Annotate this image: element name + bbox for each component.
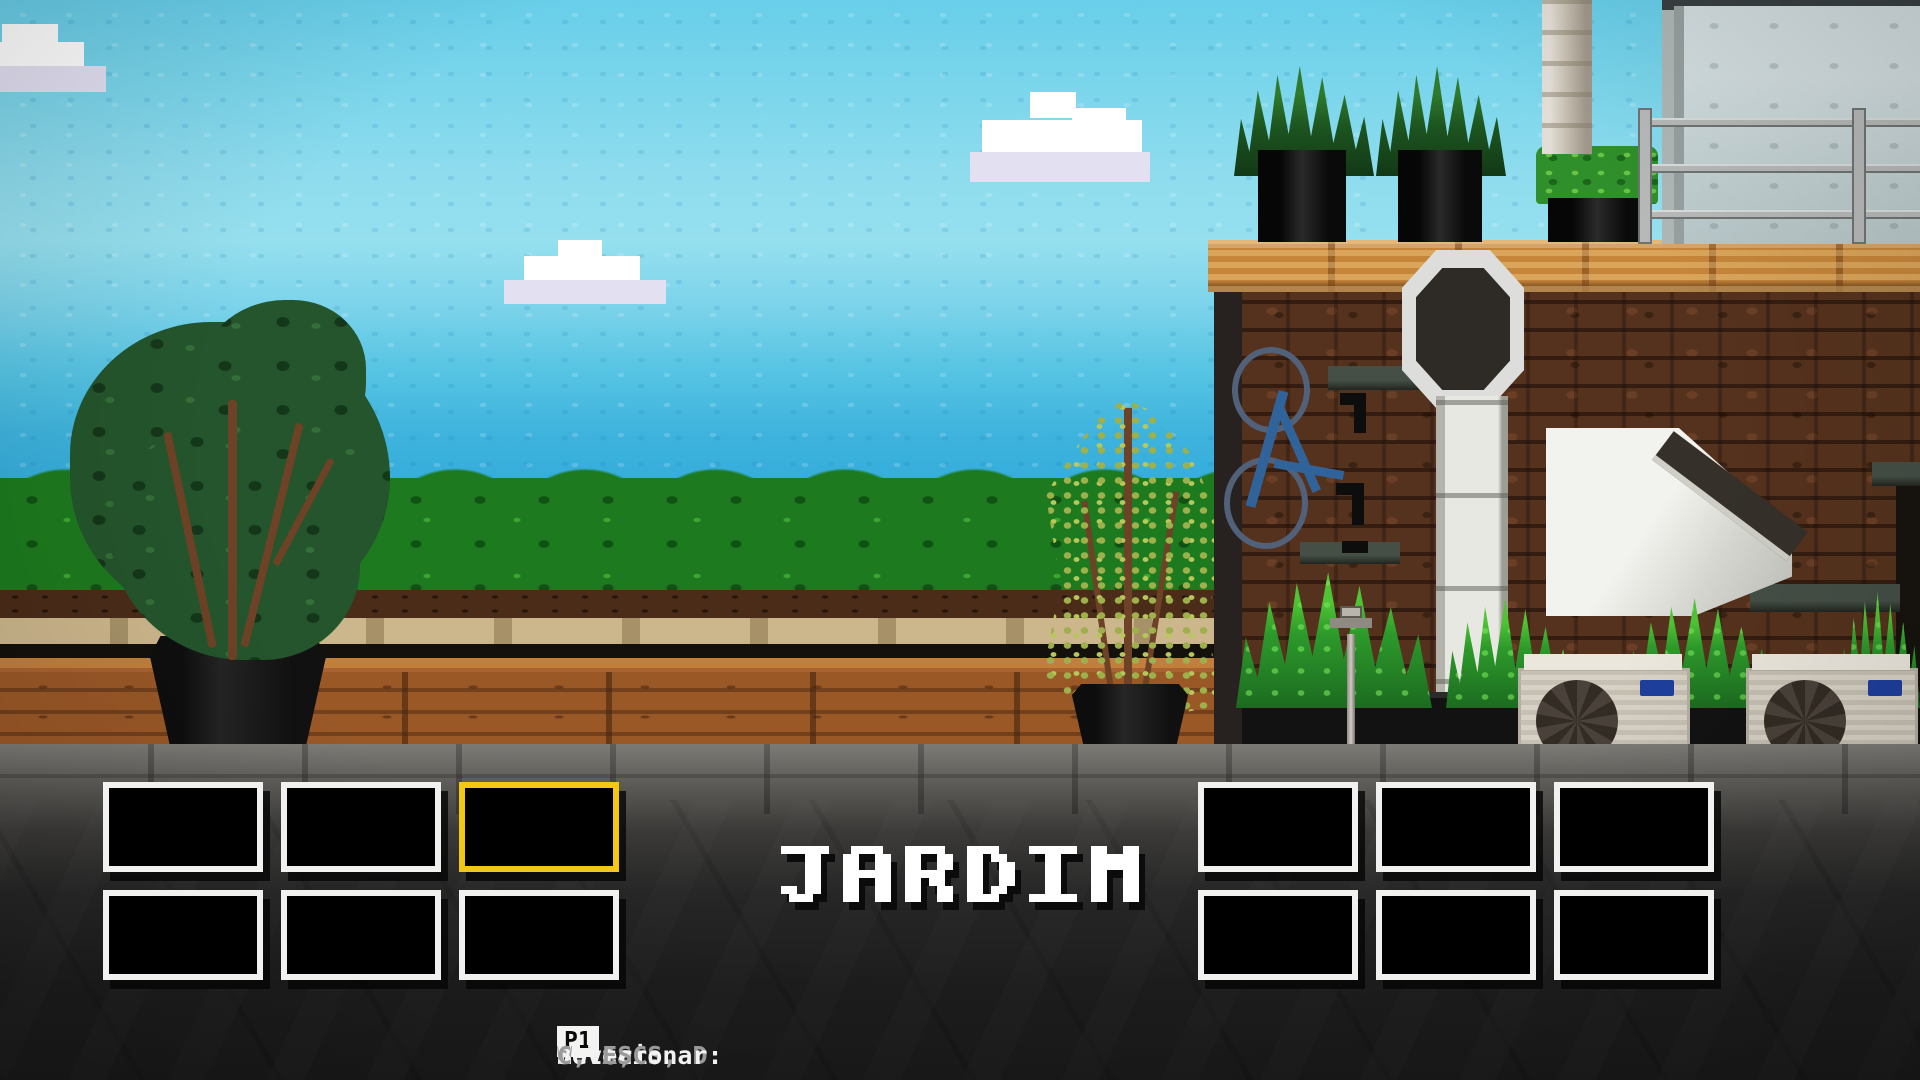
title-pixel <box>1099 886 1107 894</box>
title-pixel <box>905 846 913 854</box>
title-pixel <box>1007 862 1015 870</box>
title-pixel <box>945 894 953 902</box>
title-pixel <box>991 846 999 854</box>
title-pixel <box>1029 894 1037 902</box>
title-pixel <box>975 862 983 870</box>
title-pixel <box>851 870 859 878</box>
title-pixel <box>1123 894 1131 902</box>
title-pixel <box>875 886 883 894</box>
title-pixel <box>1091 886 1099 894</box>
title-pixel <box>1007 870 1015 878</box>
title-pixel <box>905 870 913 878</box>
title-pixel <box>1099 854 1107 862</box>
title-pixel <box>999 870 1007 878</box>
title-pixel <box>1107 854 1115 862</box>
title-pixel <box>851 854 859 862</box>
title-pixel <box>813 862 821 870</box>
title-pixel <box>1131 886 1139 894</box>
title-pixel <box>905 862 913 870</box>
title-pixel <box>921 870 929 878</box>
title-pixel <box>937 886 945 894</box>
title-pixel <box>975 854 983 862</box>
title-pixel <box>937 846 945 854</box>
octagon-window-glass <box>1416 268 1510 390</box>
concrete-pillar <box>1542 0 1592 154</box>
title-pixel <box>851 878 859 886</box>
title-pixel <box>1045 846 1053 854</box>
cloud-small <box>500 240 670 314</box>
title-pixel <box>1131 854 1139 862</box>
title-pixel <box>967 894 975 902</box>
title-pixel <box>843 878 851 886</box>
title-pixel <box>983 846 991 854</box>
title-pixel <box>913 870 921 878</box>
title-pixel <box>1045 886 1053 894</box>
title-pixel <box>1091 862 1099 870</box>
title-pixel <box>913 846 921 854</box>
title-pixel <box>937 878 945 886</box>
title-pixel <box>789 886 797 894</box>
title-pixel <box>797 894 805 902</box>
title-pixel <box>1099 878 1107 886</box>
title-pixel <box>1053 854 1061 862</box>
title-pixel <box>1045 862 1053 870</box>
title-pixel <box>1053 870 1061 878</box>
title-pixel <box>1045 854 1053 862</box>
title-pixel <box>851 862 859 870</box>
title-pixel <box>859 846 867 854</box>
title-pixel <box>913 886 921 894</box>
title-pixel <box>1053 846 1061 854</box>
title-pixel <box>875 854 883 862</box>
title-pixel <box>937 894 945 902</box>
title-pixel <box>1045 870 1053 878</box>
title-pixel <box>905 894 913 902</box>
title-pixel <box>1099 862 1107 870</box>
title-pixel <box>805 878 813 886</box>
title-pixel <box>1069 894 1077 902</box>
title-pixel <box>843 862 851 870</box>
railing-bar <box>1640 164 1920 173</box>
title-pixel <box>905 854 913 862</box>
title-pixel <box>929 878 937 886</box>
title-pixel <box>843 894 851 902</box>
title-pixel <box>789 846 797 854</box>
title-pixel <box>1037 846 1045 854</box>
title-pixel <box>875 862 883 870</box>
title-pixel <box>805 870 813 878</box>
title-pixel <box>999 886 1007 894</box>
title-pixel <box>1007 878 1015 886</box>
title-pixel <box>1037 894 1045 902</box>
title-pixel <box>875 870 883 878</box>
title-pixel <box>883 854 891 862</box>
title-pixel <box>1131 870 1139 878</box>
title-pixel <box>867 846 875 854</box>
title-pixel <box>967 878 975 886</box>
title-pixel <box>929 870 937 878</box>
title-pixel <box>1123 878 1131 886</box>
title-pixel <box>1099 846 1107 854</box>
title-pixel <box>975 846 983 854</box>
title-pixel <box>875 878 883 886</box>
bicycle <box>1222 345 1382 565</box>
title-pixel <box>999 862 1007 870</box>
title-pixel <box>1053 886 1061 894</box>
title-pixel <box>975 870 983 878</box>
title-pixel <box>805 846 813 854</box>
title-pixel <box>843 854 851 862</box>
title-pixel <box>813 886 821 894</box>
title-pixel <box>967 854 975 862</box>
title-pixel <box>929 846 937 854</box>
title-pixel <box>1029 846 1037 854</box>
title-pixel <box>1115 854 1123 862</box>
title-pixel <box>1099 870 1107 878</box>
cloud-left-edge <box>0 24 110 94</box>
title-pixel <box>1131 846 1139 854</box>
title-pixel <box>805 894 813 902</box>
cloud-large <box>966 92 1156 196</box>
title-pixel <box>813 854 821 862</box>
title-pixel <box>967 846 975 854</box>
title-pixel <box>1091 870 1099 878</box>
title-pixel <box>1053 878 1061 886</box>
title-pixel <box>1099 894 1107 902</box>
title-pixel <box>805 854 813 862</box>
title-pixel <box>781 846 789 854</box>
title-pixel <box>991 854 999 862</box>
title-pixel <box>913 862 921 870</box>
title-pixel <box>851 846 859 854</box>
title-pixel <box>921 846 929 854</box>
title-pixel <box>1131 894 1139 902</box>
title-pixel <box>1123 870 1131 878</box>
title-pixel <box>1123 886 1131 894</box>
rooftop-pot <box>1398 150 1482 242</box>
railing-post <box>1852 108 1866 244</box>
title-pixel <box>937 862 945 870</box>
title-pixel <box>1131 862 1139 870</box>
title-pixel <box>821 846 829 854</box>
title-pixel <box>975 878 983 886</box>
title-pixel <box>813 878 821 886</box>
title-pixel <box>813 846 821 854</box>
ac-logo <box>1868 680 1902 696</box>
title-pixel <box>851 894 859 902</box>
title-pixel <box>875 846 883 854</box>
title-pixel <box>967 862 975 870</box>
title-pixel <box>937 854 945 862</box>
title-pixel <box>1061 846 1069 854</box>
title-pixel <box>1107 862 1115 870</box>
title-pixel <box>883 878 891 886</box>
title-pixel <box>1091 846 1099 854</box>
ac-logo <box>1640 680 1674 696</box>
title-pixel <box>1123 846 1131 854</box>
title-pixel <box>883 894 891 902</box>
title-pixel <box>983 894 991 902</box>
title-pixel <box>1053 894 1061 902</box>
title-pixel <box>1131 878 1139 886</box>
title-pixel <box>905 878 913 886</box>
tree-foliage-3 <box>196 300 366 460</box>
title-pixel <box>789 894 797 902</box>
title-pixel <box>999 878 1007 886</box>
title-pixel <box>1091 894 1099 902</box>
title-pixel <box>1045 894 1053 902</box>
title-pixel <box>975 894 983 902</box>
game-screen: P1 Mover:W, A, S, D Selecionar:V Voltar:… <box>0 0 1920 1080</box>
wall-wood-cap <box>1208 240 1920 292</box>
title-pixel <box>937 870 945 878</box>
title-pixel <box>945 886 953 894</box>
wall-shelf <box>1872 462 1920 486</box>
title-pixel <box>805 886 813 894</box>
title-pixel <box>843 886 851 894</box>
title-pixel <box>781 886 789 894</box>
title-pixel <box>1061 894 1069 902</box>
title-pixel <box>999 854 1007 862</box>
title-pixel <box>805 862 813 870</box>
title-pixel <box>945 862 953 870</box>
title-pixel <box>813 870 821 878</box>
rooftop-pot <box>1548 198 1646 242</box>
title-pixel <box>1091 878 1099 886</box>
railing-post <box>1638 108 1652 244</box>
title-pixel <box>905 886 913 894</box>
title-pixel <box>843 870 851 878</box>
rooftop-pot <box>1258 150 1346 242</box>
title-pixel <box>1115 862 1123 870</box>
title-pixel <box>975 886 983 894</box>
title-pixel <box>1069 846 1077 854</box>
title-pixel <box>913 854 921 862</box>
sprinkler-head <box>1330 606 1372 636</box>
title-pixel <box>1091 854 1099 862</box>
title-pixel <box>883 886 891 894</box>
title-pixel <box>851 886 859 894</box>
title-pixel <box>991 886 999 894</box>
title-pixel <box>883 862 891 870</box>
railing-bar <box>1640 118 1920 127</box>
title-pixel <box>967 870 975 878</box>
title-pixel <box>1045 878 1053 886</box>
title-pixel <box>867 870 875 878</box>
title-pixel <box>967 886 975 894</box>
title-pixel <box>1053 862 1061 870</box>
title-pixel <box>913 878 921 886</box>
title-pixel <box>883 870 891 878</box>
railing-bar <box>1640 210 1920 219</box>
title-pixel <box>991 894 999 902</box>
title-pixel <box>875 894 883 902</box>
title-pixel <box>859 870 867 878</box>
title-pixel <box>945 854 953 862</box>
level-title <box>0 846 1920 916</box>
title-pixel <box>1123 854 1131 862</box>
title-pixel <box>797 846 805 854</box>
tree-branch <box>228 400 237 660</box>
title-pixel <box>1123 862 1131 870</box>
title-pixel <box>913 894 921 902</box>
